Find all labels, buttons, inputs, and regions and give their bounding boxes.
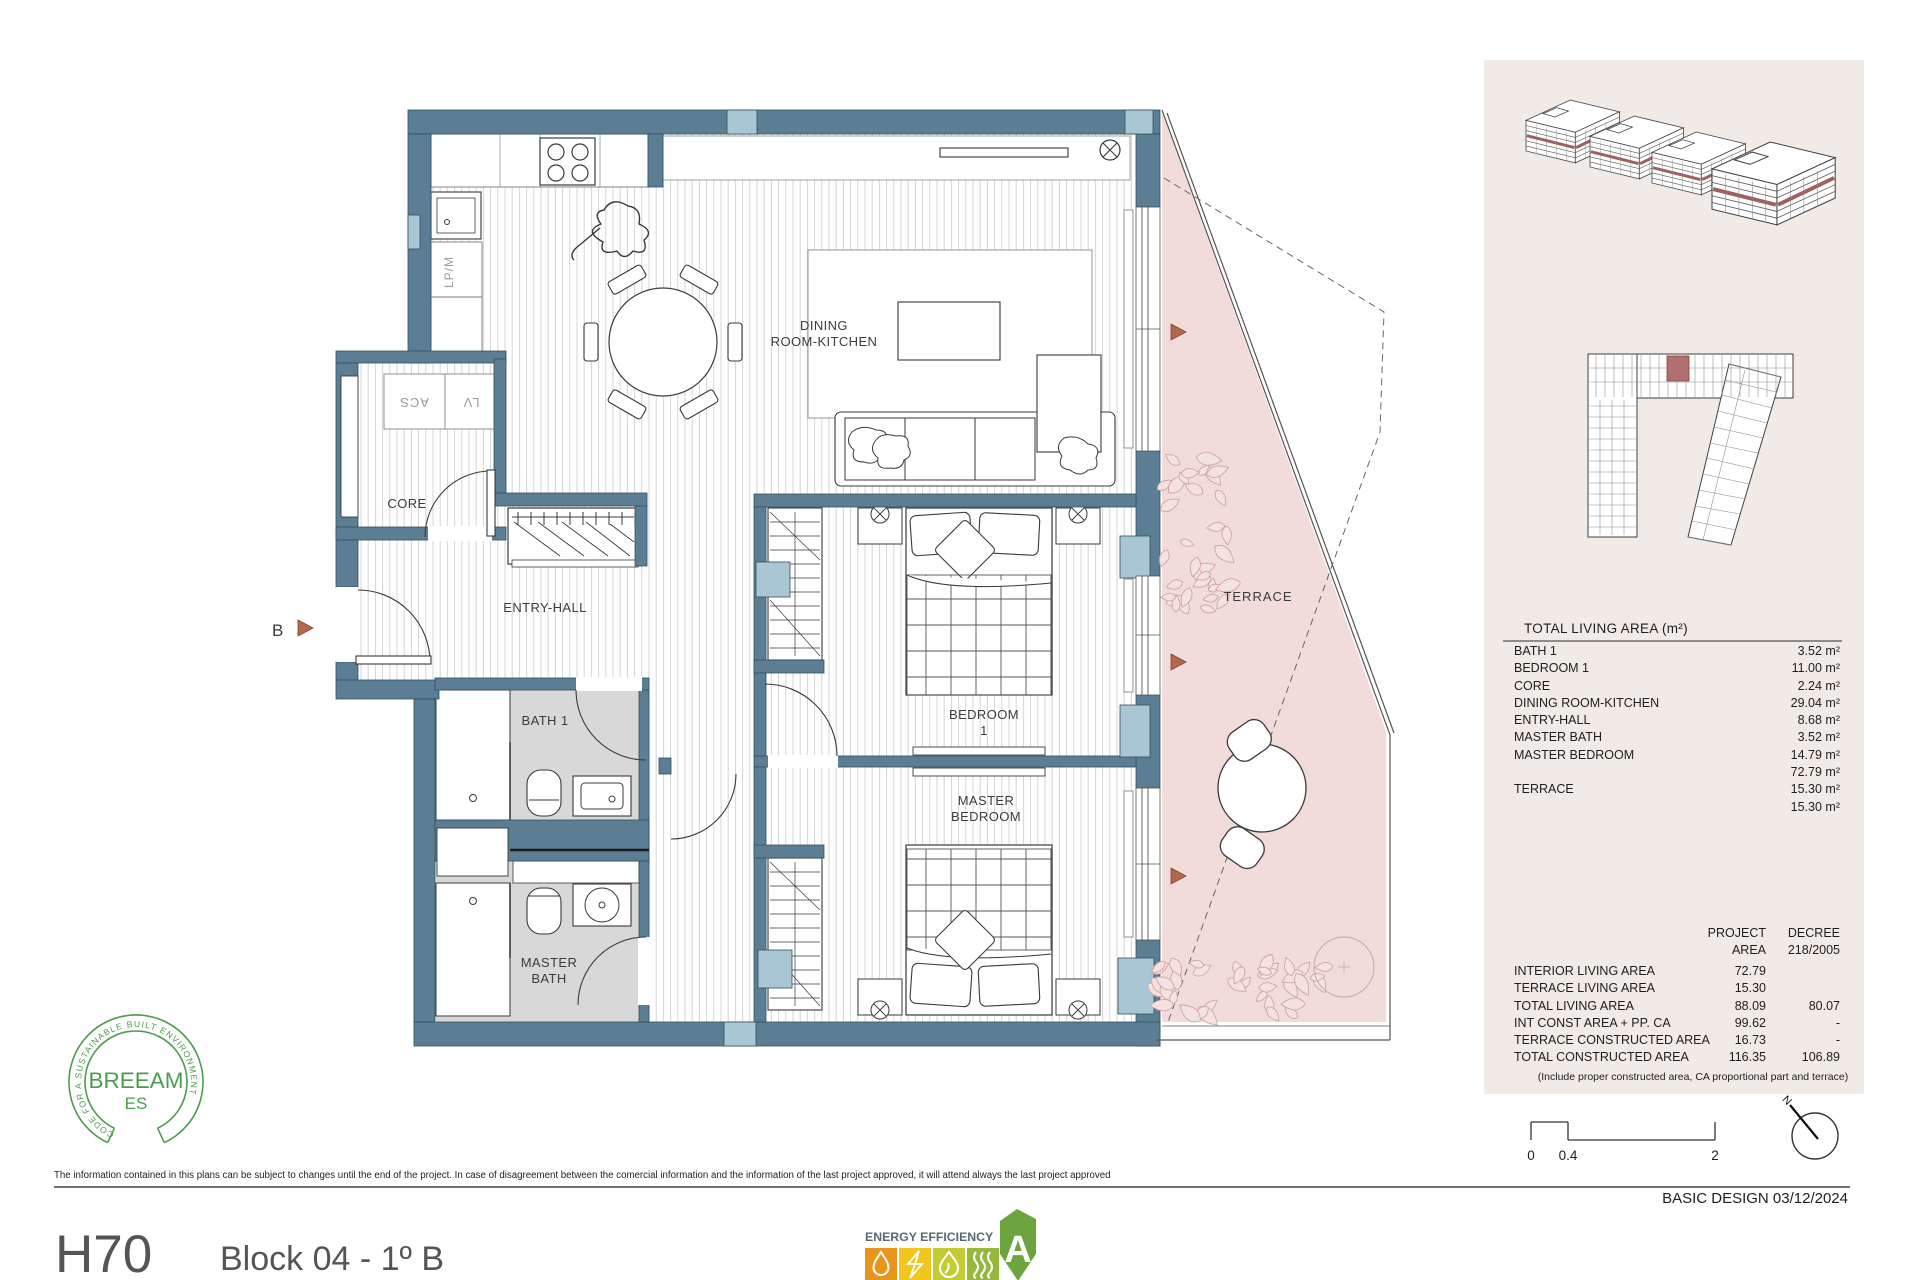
svg-text:ENTRY-HALL: ENTRY-HALL	[1514, 713, 1590, 727]
svg-text:3.52 m²: 3.52 m²	[1798, 644, 1840, 658]
svg-text:8.68 m²: 8.68 m²	[1798, 713, 1840, 727]
svg-text:72.79: 72.79	[1735, 964, 1766, 978]
svg-text:MASTER: MASTER	[958, 793, 1015, 808]
svg-text:CORE: CORE	[387, 496, 426, 511]
svg-text:INT CONST AREA + PP. CA: INT CONST AREA + PP. CA	[1514, 1016, 1671, 1030]
svg-text:TERRACE: TERRACE	[1514, 782, 1574, 796]
svg-text:15.30: 15.30	[1735, 981, 1766, 995]
svg-text:H70: H70	[55, 1225, 152, 1280]
svg-text:ACS: ACS	[399, 395, 429, 410]
svg-text:BREEAM: BREEAM	[88, 1068, 183, 1093]
svg-text:BASIC DESIGN 03/12/2024: BASIC DESIGN 03/12/2024	[1662, 1190, 1848, 1207]
svg-text:11.00 m²: 11.00 m²	[1792, 661, 1840, 675]
svg-text:INTERIOR LIVING AREA: INTERIOR LIVING AREA	[1514, 964, 1656, 978]
svg-text:BEDROOM: BEDROOM	[951, 809, 1021, 824]
svg-text:TERRACE LIVING AREA: TERRACE LIVING AREA	[1514, 981, 1656, 995]
svg-text:0.4: 0.4	[1559, 1148, 1578, 1163]
svg-text:DECREE: DECREE	[1788, 926, 1840, 940]
svg-text:Block 04 - 1º B: Block 04 - 1º B	[220, 1240, 444, 1278]
svg-text:15.30 m²: 15.30 m²	[1791, 800, 1840, 814]
svg-text:14.79 m²: 14.79 m²	[1791, 748, 1840, 762]
svg-text:LP/M: LP/M	[442, 256, 456, 288]
svg-text:BATH: BATH	[531, 971, 566, 986]
svg-text:0: 0	[1527, 1148, 1535, 1163]
svg-text:15.30 m²: 15.30 m²	[1791, 782, 1840, 796]
svg-text:-: -	[1836, 1033, 1840, 1047]
svg-text:ENERGY EFFICIENCY: ENERGY EFFICIENCY	[865, 1230, 993, 1244]
svg-text:3.52 m²: 3.52 m²	[1798, 730, 1840, 744]
svg-text:DINING ROOM-KITCHEN: DINING ROOM-KITCHEN	[1514, 696, 1659, 710]
svg-text:-: -	[1836, 1016, 1840, 1030]
svg-text:2: 2	[1711, 1148, 1719, 1163]
svg-text:(Include proper constructed ar: (Include proper constructed area, CA pro…	[1538, 1071, 1849, 1083]
svg-text:29.04 m²: 29.04 m²	[1791, 696, 1840, 710]
svg-text:CORE: CORE	[1514, 679, 1550, 693]
svg-text:B: B	[272, 621, 283, 640]
svg-text:TOTAL LIVING AREA: TOTAL LIVING AREA	[1514, 999, 1635, 1013]
svg-text:88.09: 88.09	[1735, 999, 1766, 1013]
svg-text:TOTAL LIVING AREA (m²): TOTAL LIVING AREA (m²)	[1524, 621, 1688, 636]
svg-text:ROOM-KITCHEN: ROOM-KITCHEN	[771, 334, 878, 349]
svg-text:AREA: AREA	[1732, 943, 1767, 957]
svg-text:BEDROOM 1: BEDROOM 1	[1514, 661, 1589, 675]
svg-text:The information contained in t: The information contained in this plans …	[54, 1170, 1111, 1181]
svg-text:116.35: 116.35	[1729, 1050, 1766, 1064]
svg-text:MASTER BEDROOM: MASTER BEDROOM	[1514, 748, 1634, 762]
svg-text:72.79 m²: 72.79 m²	[1791, 765, 1840, 779]
svg-text:MASTER: MASTER	[521, 955, 578, 970]
svg-text:A: A	[1004, 1229, 1031, 1271]
svg-text:ES: ES	[125, 1094, 148, 1113]
svg-text:BATH 1: BATH 1	[1514, 644, 1557, 658]
svg-text:BATH 1: BATH 1	[522, 713, 569, 728]
svg-text:DINING: DINING	[800, 318, 848, 333]
svg-text:TERRACE: TERRACE	[1223, 589, 1292, 604]
svg-text:16.73: 16.73	[1735, 1033, 1766, 1047]
svg-text:99.62: 99.62	[1735, 1016, 1766, 1030]
svg-text:TOTAL CONSTRUCTED AREA: TOTAL CONSTRUCTED AREA	[1514, 1050, 1689, 1064]
svg-text:MASTER BATH: MASTER BATH	[1514, 730, 1602, 744]
svg-text:TERRACE CONSTRUCTED AREA: TERRACE CONSTRUCTED AREA	[1514, 1033, 1711, 1047]
svg-text:LV: LV	[463, 395, 480, 410]
svg-text:BEDROOM: BEDROOM	[949, 707, 1019, 722]
svg-text:PROJECT: PROJECT	[1708, 926, 1767, 940]
svg-text:106.89: 106.89	[1802, 1050, 1840, 1064]
svg-text:80.07: 80.07	[1809, 999, 1840, 1013]
svg-text:2.24 m²: 2.24 m²	[1798, 679, 1840, 693]
svg-text:ENTRY-HALL: ENTRY-HALL	[503, 600, 586, 615]
svg-text:1: 1	[980, 723, 988, 738]
svg-text:218/2005: 218/2005	[1788, 943, 1840, 957]
